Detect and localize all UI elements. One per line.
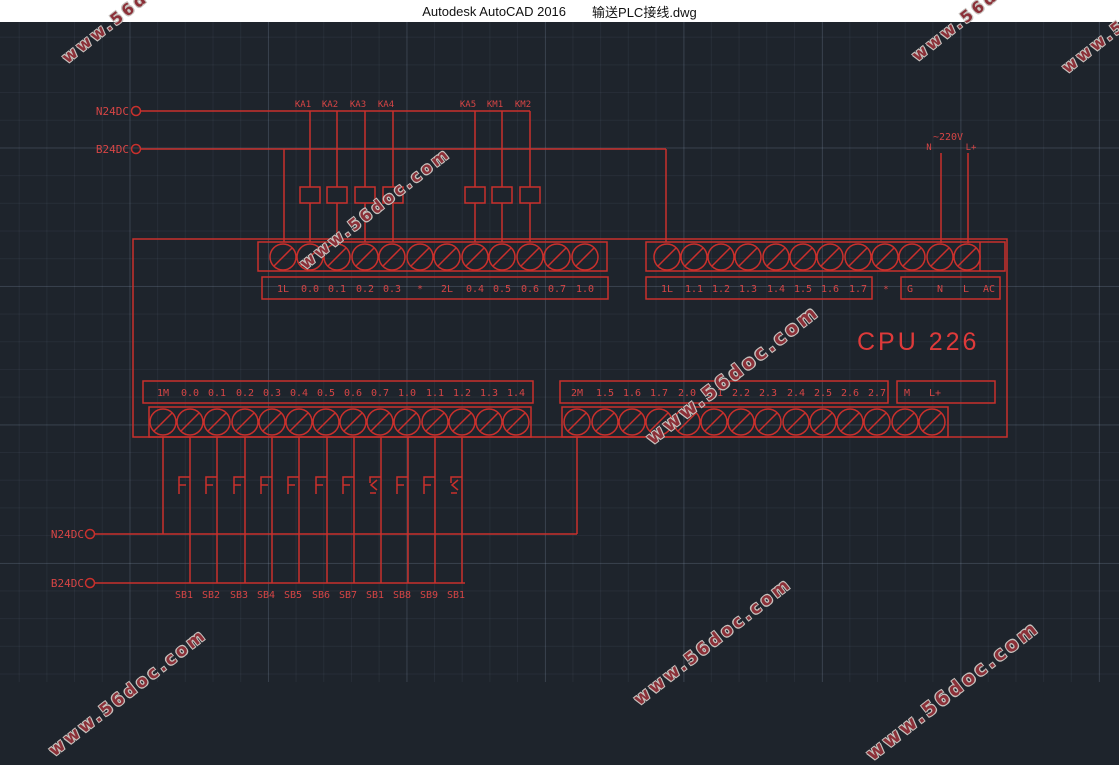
terminal-slash <box>426 413 444 431</box>
terminal-slash <box>521 248 539 266</box>
terminal-label: 2M <box>571 388 583 399</box>
terminal-slash <box>759 413 777 431</box>
terminal-slash <box>263 413 281 431</box>
push-button-symbol <box>343 477 354 494</box>
push-button-symbol <box>179 477 190 494</box>
terminal-label: 0.3 <box>383 284 401 295</box>
terminal-label: 0.4 <box>466 284 484 295</box>
terminal-slash <box>732 413 750 431</box>
terminal-label: 0.3 <box>263 388 281 399</box>
rail-terminal <box>132 107 141 116</box>
cad-drawing: N24DCB24DCKA1KA2KA3KA4KA5KM1KM2~220VNL+C… <box>0 22 1119 682</box>
terminal-label: L+ <box>929 388 941 399</box>
terminal-label: 0.6 <box>344 388 362 399</box>
terminal-slash <box>658 248 676 266</box>
push-button-label: SB4 <box>257 590 275 601</box>
terminal-slash <box>208 413 226 431</box>
terminal-label: 1.1 <box>685 284 703 295</box>
app-title: Autodesk AutoCAD 2016 <box>422 4 566 19</box>
terminal-label: 1L <box>277 284 289 295</box>
terminal-slash <box>274 248 292 266</box>
terminal-label: 2.3 <box>759 388 777 399</box>
terminal-slash <box>371 413 389 431</box>
push-button-label: SB8 <box>393 590 411 601</box>
power-label: N <box>926 143 931 153</box>
push-button-label: SB1 <box>366 590 384 601</box>
terminal-slash <box>576 248 594 266</box>
terminal-slash <box>154 413 172 431</box>
push-button-symbol <box>234 477 245 494</box>
push-button-symbol <box>288 477 299 494</box>
push-button-symbol <box>316 477 327 494</box>
terminal-slash <box>705 413 723 431</box>
push-button-symbol <box>451 477 462 493</box>
terminal-label: 1.4 <box>507 388 525 399</box>
terminal-label: * <box>883 285 888 295</box>
relay-label: KA3 <box>350 100 366 110</box>
terminal-label: 1.6 <box>623 388 641 399</box>
terminal-label: 1.2 <box>453 388 471 399</box>
terminal-label: 2.7 <box>868 388 886 399</box>
terminal-slash <box>290 413 308 431</box>
terminal-slash <box>876 248 894 266</box>
terminal-label: 2.4 <box>787 388 805 399</box>
terminal-label: 1.0 <box>398 388 416 399</box>
terminal-label: 0.1 <box>208 388 226 399</box>
relay-coil <box>465 187 485 203</box>
terminal-label: 1.5 <box>794 284 812 295</box>
terminal-label: G <box>907 284 913 295</box>
push-button-label: SB9 <box>420 590 438 601</box>
document-filename: 输送PLC接线.dwg <box>592 2 697 21</box>
terminal-label: 0.2 <box>356 284 374 295</box>
terminal-slash <box>739 248 757 266</box>
terminal-slash <box>958 248 976 266</box>
terminal-slash <box>548 248 566 266</box>
terminal-slash <box>480 413 498 431</box>
terminal-label: 2.6 <box>841 388 859 399</box>
terminal-label: 1M <box>157 388 169 399</box>
terminal-label: 1.3 <box>480 388 498 399</box>
rail-label: N24DC <box>51 528 84 541</box>
terminal-label: 0.4 <box>290 388 308 399</box>
push-button-label: SB7 <box>339 590 357 601</box>
terminal-label: 1.7 <box>650 388 668 399</box>
relay-coil <box>492 187 512 203</box>
rail-terminal <box>86 530 95 539</box>
terminal-label: 1.1 <box>426 388 444 399</box>
terminal-slash <box>493 248 511 266</box>
terminal-label: 1.0 <box>576 284 594 295</box>
relay-label: KA4 <box>378 100 394 110</box>
drawing-canvas[interactable]: N24DCB24DCKA1KA2KA3KA4KA5KM1KM2~220VNL+C… <box>0 22 1119 682</box>
terminal-label: 0.2 <box>236 388 254 399</box>
terminal-label: 0.0 <box>301 284 319 295</box>
terminal-label: 1.2 <box>712 284 730 295</box>
terminal-label: AC <box>983 284 995 295</box>
terminal-label: 1.4 <box>767 284 785 295</box>
terminal-label: 0.6 <box>521 284 539 295</box>
terminal-slash <box>903 248 921 266</box>
terminal-label: 2.5 <box>814 388 832 399</box>
terminal-slash <box>344 413 362 431</box>
push-button-label: SB6 <box>312 590 330 601</box>
terminal-slash <box>841 413 859 431</box>
terminal-slash <box>787 413 805 431</box>
relay-label: KA5 <box>460 100 476 110</box>
push-button-label: SB1 <box>447 590 465 601</box>
label-strip <box>143 381 533 403</box>
push-button-symbol <box>370 477 381 493</box>
rail-label: N24DC <box>96 105 129 118</box>
terminal-slash <box>896 413 914 431</box>
terminal-slash <box>814 413 832 431</box>
terminal-label: M <box>904 388 910 399</box>
terminal-slash <box>181 413 199 431</box>
terminal-label: 1.5 <box>596 388 614 399</box>
terminal-slash <box>868 413 886 431</box>
terminal-label: 1.7 <box>849 284 867 295</box>
terminal-slash <box>507 413 525 431</box>
terminal-slash <box>236 413 254 431</box>
push-button-symbol <box>261 477 272 494</box>
terminal-label: 1.3 <box>739 284 757 295</box>
terminal-label: 0.5 <box>317 388 335 399</box>
terminal-slash <box>767 248 785 266</box>
terminal-strip <box>646 242 1005 271</box>
terminal-label: 0.5 <box>493 284 511 295</box>
power-label: ~220V <box>933 132 963 143</box>
terminal-label: 2.2 <box>732 388 750 399</box>
terminal-slash <box>712 248 730 266</box>
label-strip <box>897 381 995 403</box>
cpu-label: CPU 226 <box>857 328 979 356</box>
terminal-label: 1.6 <box>821 284 839 295</box>
terminal-slash <box>931 248 949 266</box>
relay-coil <box>327 187 347 203</box>
terminal-slash <box>438 248 456 266</box>
terminal-label: 0.7 <box>371 388 389 399</box>
rail-terminal <box>86 579 95 588</box>
relay-coil <box>520 187 540 203</box>
push-button-label: SB2 <box>202 590 220 601</box>
terminal-slash <box>685 248 703 266</box>
terminal-slash <box>623 413 641 431</box>
rail-label: B24DC <box>51 577 84 590</box>
push-button-symbol <box>397 477 408 494</box>
rail-terminal <box>132 145 141 154</box>
terminal-slash <box>794 248 812 266</box>
terminal-slash <box>568 413 586 431</box>
terminal-slash <box>453 413 471 431</box>
push-button-symbol <box>206 477 217 494</box>
terminal-slash <box>383 248 401 266</box>
terminal-slash <box>411 248 429 266</box>
terminal-label: 0.7 <box>548 284 566 295</box>
relay-label: KM2 <box>515 100 531 110</box>
terminal-label: L <box>963 284 969 295</box>
terminal-slash <box>317 413 335 431</box>
push-button-symbol <box>424 477 435 494</box>
push-button-label: SB3 <box>230 590 248 601</box>
terminal-slash <box>821 248 839 266</box>
relay-label: KA2 <box>322 100 338 110</box>
terminal-slash <box>398 413 416 431</box>
terminal-slash <box>596 413 614 431</box>
push-button-label: SB5 <box>284 590 302 601</box>
relay-label: KM1 <box>487 100 503 110</box>
terminal-slash <box>923 413 941 431</box>
rail-label: B24DC <box>96 143 129 156</box>
power-label: L+ <box>966 143 977 153</box>
relay-coil <box>300 187 320 203</box>
terminal-label: * <box>417 284 423 295</box>
terminal-label: 1L <box>661 284 673 295</box>
relay-label: KA1 <box>295 100 311 110</box>
terminal-slash <box>356 248 374 266</box>
terminal-label: N <box>937 284 943 295</box>
terminal-label: 0.0 <box>181 388 199 399</box>
terminal-label: 2L <box>441 284 453 295</box>
terminal-label: 0.1 <box>328 284 346 295</box>
push-button-label: SB1 <box>175 590 193 601</box>
terminal-slash <box>466 248 484 266</box>
terminal-slash <box>849 248 867 266</box>
